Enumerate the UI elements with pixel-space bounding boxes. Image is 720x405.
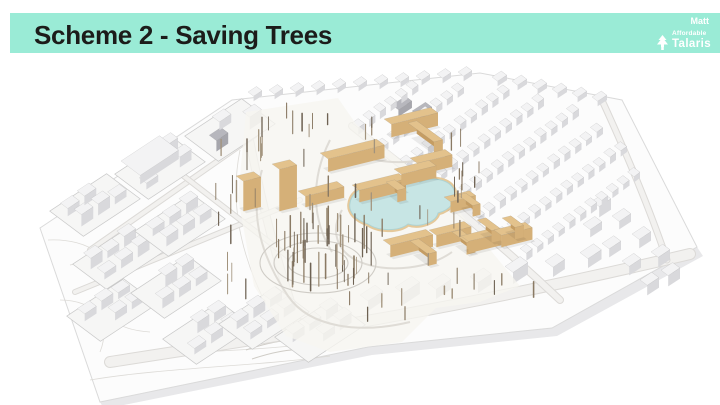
brand-line2: Talaris <box>672 39 711 51</box>
author-label: Matt <box>691 17 710 26</box>
brand-logo: Affordable Talaris <box>656 31 711 50</box>
slide-header: Scheme 2 - Saving Trees Matt Affordable … <box>10 13 720 53</box>
brand-text: Affordable Talaris <box>672 31 711 50</box>
site-model-svg <box>0 0 720 405</box>
slide-canvas: Scheme 2 - Saving Trees Matt Affordable … <box>0 0 720 405</box>
brand-line1: Affordable <box>672 31 711 38</box>
page-title: Scheme 2 - Saving Trees <box>10 22 332 48</box>
tree-icon <box>656 35 669 50</box>
